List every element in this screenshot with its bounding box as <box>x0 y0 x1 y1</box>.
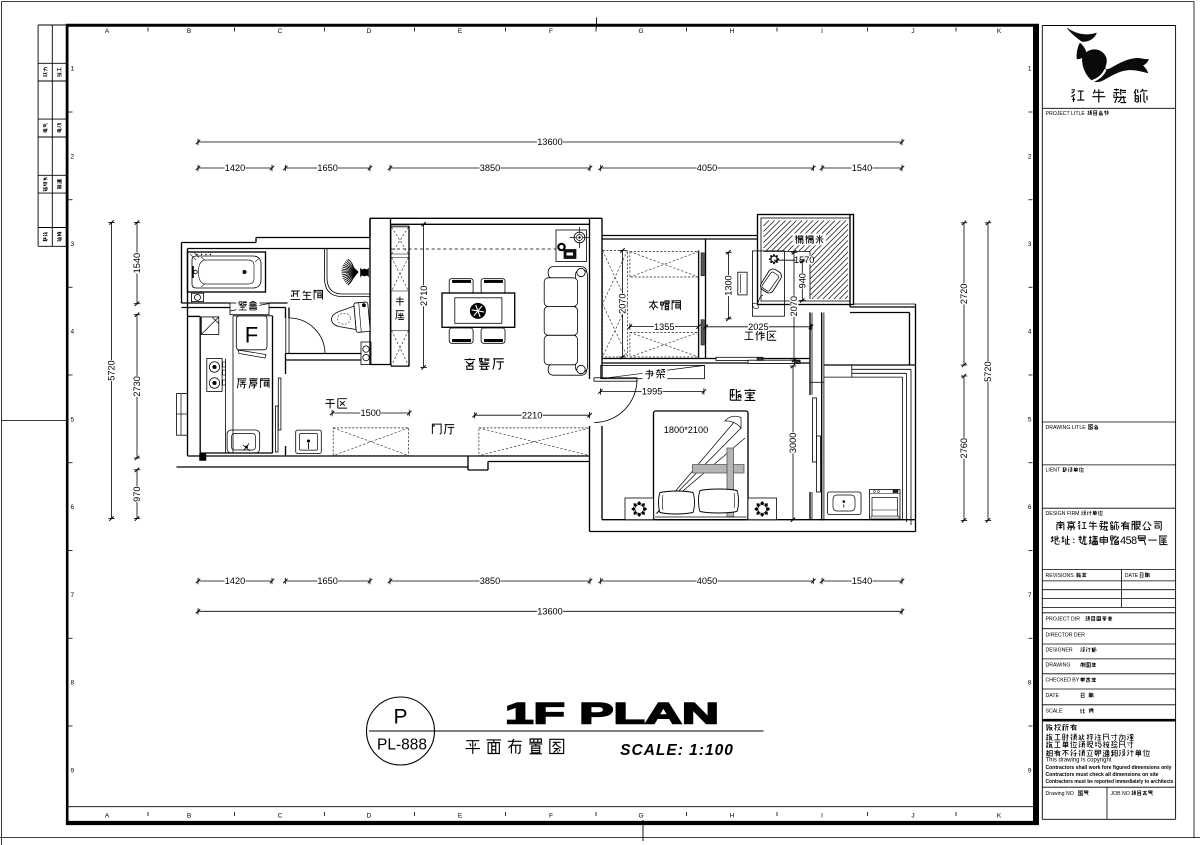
svg-text:G: G <box>638 813 643 820</box>
svg-text:8: 8 <box>1028 680 1032 687</box>
svg-text:SCALE: SCALE <box>1046 709 1064 715</box>
svg-text:Contractors must check all dim: Contractors must check all dimensions on… <box>1046 772 1159 778</box>
svg-text:P: P <box>393 706 407 729</box>
svg-text:4050: 4050 <box>697 163 717 173</box>
svg-text:This drawing is copyright: This drawing is copyright <box>1046 758 1112 764</box>
svg-text:PROJECT DIR: PROJECT DIR <box>1046 617 1081 623</box>
svg-text:7: 7 <box>71 592 75 599</box>
svg-text:940: 940 <box>798 273 808 288</box>
svg-text:CHECKED BY: CHECKED BY <box>1046 678 1080 684</box>
svg-text:2720: 2720 <box>959 284 969 304</box>
svg-text:3: 3 <box>1028 241 1032 248</box>
svg-text:REVISIONS: REVISIONS <box>1046 573 1075 579</box>
svg-text:J: J <box>911 813 914 820</box>
svg-text:K: K <box>997 28 1002 35</box>
svg-text:F: F <box>549 813 553 820</box>
svg-text:JOB NO: JOB NO <box>1111 791 1130 797</box>
svg-text:A: A <box>105 28 110 35</box>
svg-text:Drawing NO: Drawing NO <box>1046 791 1074 797</box>
svg-text:13600: 13600 <box>537 137 563 147</box>
svg-text:8: 8 <box>71 680 75 687</box>
svg-text:1650: 1650 <box>317 576 337 586</box>
svg-text:1: 1 <box>1028 66 1032 73</box>
svg-text:5: 5 <box>1028 417 1032 424</box>
svg-text:Contractors must be reported i: Contractors must be reported immediately… <box>1046 779 1174 785</box>
svg-text:DATE: DATE <box>1046 693 1060 699</box>
svg-text:1540: 1540 <box>132 253 142 273</box>
svg-text:PL-888: PL-888 <box>377 737 427 754</box>
svg-text:1800*2100: 1800*2100 <box>664 425 708 435</box>
svg-text:D: D <box>367 813 372 820</box>
svg-text:H: H <box>730 28 735 35</box>
svg-text:7: 7 <box>1028 592 1032 599</box>
svg-text:LIENT: LIENT <box>1046 468 1062 474</box>
svg-text:H: H <box>730 813 735 820</box>
svg-text:B: B <box>187 813 191 820</box>
svg-text:1540: 1540 <box>852 576 872 586</box>
svg-text:2730: 2730 <box>132 376 142 396</box>
svg-text:5720: 5720 <box>983 361 993 381</box>
svg-text:D: D <box>367 28 372 35</box>
svg-text:DRAWING LITLE: DRAWING LITLE <box>1046 425 1087 431</box>
svg-text:F: F <box>245 323 258 348</box>
svg-text:2: 2 <box>1028 154 1032 161</box>
svg-text:A: A <box>105 813 110 820</box>
svg-text:2210: 2210 <box>522 410 542 420</box>
svg-text:3: 3 <box>71 241 75 248</box>
svg-text:2070: 2070 <box>618 293 628 313</box>
svg-text:B: B <box>187 28 191 35</box>
svg-text:1355: 1355 <box>654 322 674 332</box>
svg-text:6: 6 <box>1028 504 1032 511</box>
svg-text:1500: 1500 <box>360 408 380 418</box>
svg-text:1995: 1995 <box>642 387 662 397</box>
svg-text:6: 6 <box>71 504 75 511</box>
svg-text:13600: 13600 <box>537 607 563 617</box>
svg-text:C: C <box>278 28 283 35</box>
svg-text:2025: 2025 <box>748 322 768 332</box>
svg-text:9: 9 <box>1028 768 1032 775</box>
svg-text:1: 1 <box>71 66 75 73</box>
svg-text:Contractors shall work fore fi: Contractors shall work fore figured dime… <box>1046 765 1172 771</box>
svg-text:2710: 2710 <box>419 286 429 306</box>
svg-text:E: E <box>458 28 463 35</box>
svg-text:8: 8 <box>1131 535 1137 547</box>
svg-text:PROJECT LITLE: PROJECT LITLE <box>1046 111 1086 117</box>
svg-text:2070: 2070 <box>789 296 799 316</box>
svg-text:1420: 1420 <box>225 163 245 173</box>
svg-text:G: G <box>638 28 643 35</box>
svg-text:970: 970 <box>132 487 142 502</box>
svg-text:2: 2 <box>71 154 75 161</box>
svg-text:1650: 1650 <box>317 163 337 173</box>
svg-text:E: E <box>458 813 463 820</box>
svg-text:DRAWING: DRAWING <box>1046 663 1071 669</box>
svg-text:J: J <box>911 28 914 35</box>
svg-text:DESIGNER: DESIGNER <box>1046 648 1073 654</box>
svg-text:9: 9 <box>71 768 75 775</box>
svg-text:K: K <box>997 813 1002 820</box>
svg-text:4050: 4050 <box>697 576 717 586</box>
svg-text:3850: 3850 <box>480 576 500 586</box>
svg-text:F: F <box>549 28 553 35</box>
svg-text:2760: 2760 <box>959 438 969 458</box>
svg-text:5720: 5720 <box>107 360 117 380</box>
svg-text:C: C <box>278 813 283 820</box>
svg-text:4: 4 <box>1028 329 1032 336</box>
svg-text:5: 5 <box>71 417 75 424</box>
svg-text:1F PLAN: 1F PLAN <box>505 698 719 731</box>
svg-text:1420: 1420 <box>225 576 245 586</box>
svg-text:1300: 1300 <box>724 275 734 295</box>
svg-text:1570: 1570 <box>794 255 814 265</box>
svg-text:1540: 1540 <box>852 163 872 173</box>
svg-text:I: I <box>821 813 823 820</box>
svg-text:3000: 3000 <box>788 433 798 453</box>
svg-text:DATE: DATE <box>1125 573 1139 579</box>
svg-text:SCALE: 1:100: SCALE: 1:100 <box>620 742 734 759</box>
svg-text:DIRECTOR DER: DIRECTOR DER <box>1046 632 1086 638</box>
svg-text:4: 4 <box>71 329 75 336</box>
svg-text:3850: 3850 <box>480 163 500 173</box>
svg-text:DESIGN FIRM: DESIGN FIRM <box>1046 511 1080 517</box>
svg-text:I: I <box>821 28 823 35</box>
